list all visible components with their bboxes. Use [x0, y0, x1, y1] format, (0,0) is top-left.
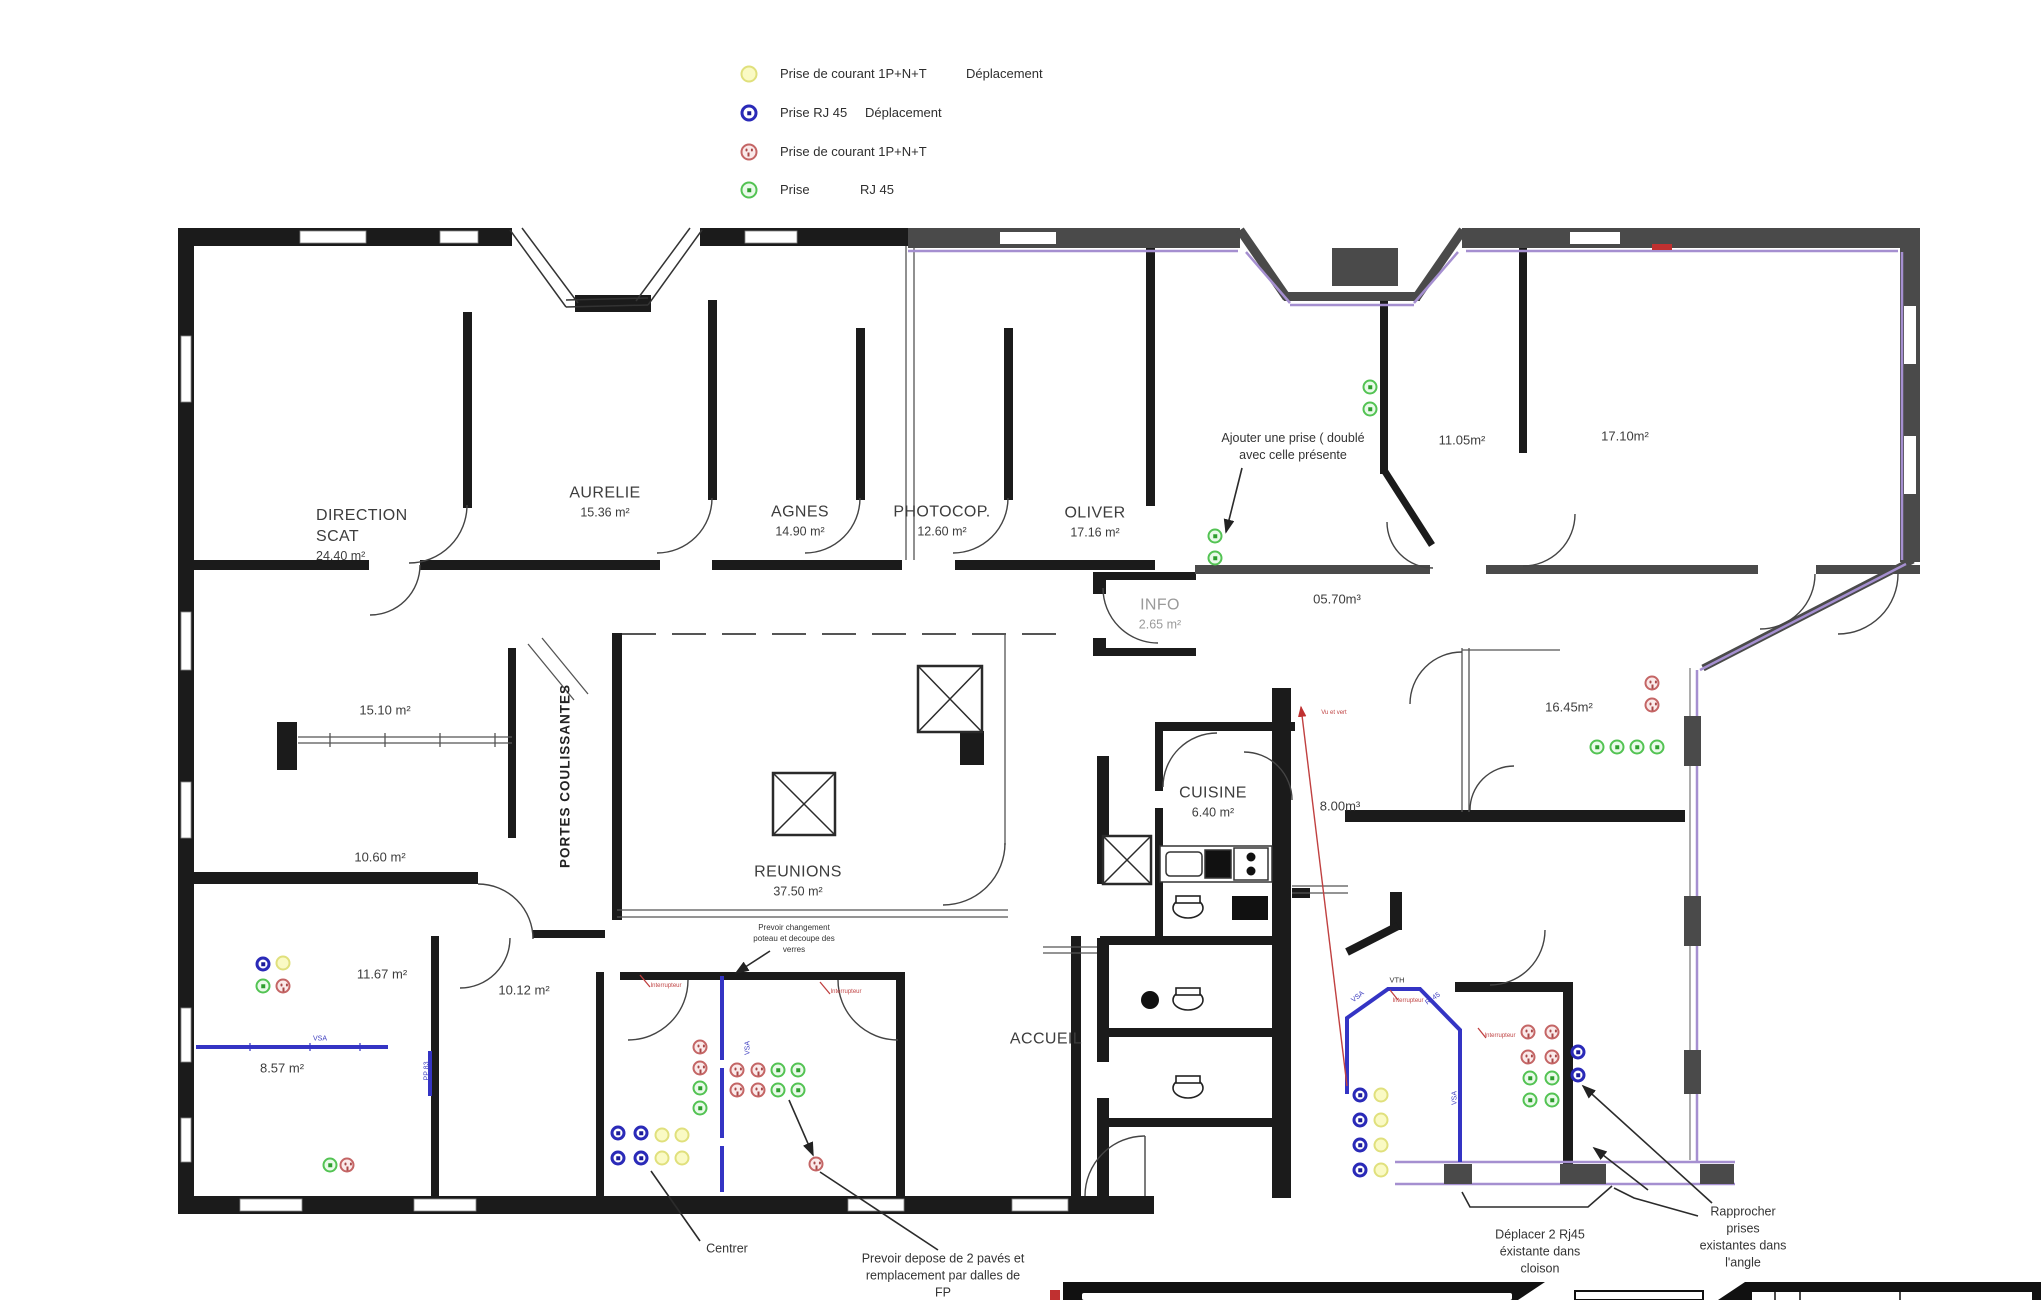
gray-wall-gaps [1000, 232, 1916, 574]
floor-plan-drawing [0, 0, 2041, 1300]
prise-courant-icon [1521, 1025, 1536, 1040]
prise-courant-icon [730, 1083, 745, 1098]
wall-label: PP 83 [424, 1062, 431, 1081]
wall-label: VSA [745, 1041, 752, 1055]
prise-courant-icon [1545, 1025, 1560, 1040]
wc-basin [1141, 991, 1159, 1009]
room-label: 10.60 m² [354, 850, 405, 867]
legend-label: Prise de courant 1P+N+T [780, 144, 927, 159]
annotation-prevoir-depose: Prevoir depose de 2 pavés etremplacement… [862, 1251, 1025, 1300]
prise-rj45-icon [1610, 740, 1625, 755]
prise-rj45-icon [1363, 402, 1378, 417]
wc-fixtures [1173, 896, 1203, 1098]
prise-courant-icon [809, 1157, 824, 1172]
prise-rj45-icon [1208, 529, 1223, 544]
legend-prise-rj45-icon [741, 182, 758, 199]
prise-courant-icon [751, 1083, 766, 1098]
room-label: 11.05m² [1439, 433, 1486, 450]
bottom-fragments [1050, 1282, 2041, 1300]
room-label: AGNES14.90 m² [771, 502, 829, 539]
wall-label: VSA [313, 1036, 327, 1043]
prise-rj45-icon [1523, 1071, 1538, 1086]
prise-courant-deplacement-icon [675, 1151, 690, 1166]
room-label: CUISINE6.40 m² [1179, 783, 1247, 820]
blue-vsa-walls [196, 976, 1460, 1192]
wall-label: VSA [1452, 1091, 1459, 1105]
prise-courant-deplacement-icon [1374, 1113, 1389, 1128]
prise-rj45-icon [256, 979, 271, 994]
pillars [773, 666, 1151, 884]
prise-rj45-icon [791, 1083, 806, 1098]
annotation-deplacer-rj45: Déplacer 2 Rj45éxistante danscloison [1495, 1227, 1585, 1278]
prise-rj45-deplacement-icon [611, 1126, 626, 1141]
wall-label: Vu et vert [1321, 710, 1346, 716]
annotation-prevoir-changement: Prevoir changementpoteau et decoupe desv… [753, 923, 834, 955]
room-label: 16.45m² [1545, 700, 1593, 717]
prise-rj45-deplacement-icon [256, 957, 271, 972]
prise-courant-icon [1545, 1050, 1560, 1065]
room-label: 10.12 m² [498, 983, 549, 1000]
legend-label: Prise [780, 182, 810, 197]
thin-partitions [298, 246, 1560, 953]
red-wall-mark [1652, 244, 1672, 250]
wall-label: VTH [1390, 976, 1405, 985]
room-label: AURELIE15.36 m² [569, 483, 640, 520]
stove-burner [1247, 867, 1256, 876]
prise-courant-deplacement-icon [675, 1128, 690, 1143]
prise-rj45-deplacement-icon [611, 1151, 626, 1166]
prise-rj45-icon [1650, 740, 1665, 755]
room-label: 11.67 m² [357, 967, 407, 984]
room-label: 15.10 m² [359, 703, 410, 720]
wall-diagonal [1347, 926, 1398, 952]
legend-prise-courant-icon [741, 144, 758, 161]
legend-label-extra: Déplacement [966, 66, 1043, 81]
prise-courant-icon [730, 1063, 745, 1078]
legend-label: Prise RJ 45 [780, 105, 847, 120]
prise-rj45-icon [1523, 1093, 1538, 1108]
annotation-rapprocher-prises: Rapprocherprisesexistantes dansl'angle [1700, 1203, 1787, 1271]
room-label: INFO2.65 m² [1139, 595, 1181, 632]
prise-rj45-deplacement-icon [1571, 1068, 1586, 1083]
room-label: ACCUEIL [1010, 1030, 1082, 1051]
prise-rj45-icon [693, 1101, 708, 1116]
annotation-ajouter-prise: Ajouter une prise ( doubléavec celle pré… [1221, 430, 1364, 464]
prise-courant-icon [1645, 698, 1660, 713]
prise-rj45-icon [1363, 380, 1378, 395]
blue-wall-gap [719, 1138, 725, 1146]
stove-burner [1247, 853, 1256, 862]
wall-label: Interrupteur [830, 989, 861, 995]
legend-label: Prise de courant 1P+N+T [780, 66, 927, 81]
floor-plan-page: Prise de courant 1P+N+T Déplacement Pris… [0, 0, 2041, 1300]
room-label: DIRECTIONSCAT24.40 m² [316, 506, 408, 564]
wall-label: Interrupteur [1392, 998, 1423, 1004]
room-label: PHOTOCOP.12.60 m² [893, 502, 990, 539]
prise-rj45-deplacement-icon [1353, 1138, 1368, 1153]
prise-rj45-icon [1208, 551, 1223, 566]
prise-rj45-icon [1630, 740, 1645, 755]
kitchen-counter [1160, 846, 1272, 882]
prise-rj45-icon [791, 1063, 806, 1078]
prise-rj45-deplacement-icon [1353, 1088, 1368, 1103]
prise-courant-icon [1645, 676, 1660, 691]
prise-rj45-deplacement-icon [1353, 1163, 1368, 1178]
prise-rj45-icon [1590, 740, 1605, 755]
switch-ticks [640, 975, 1486, 1038]
prise-courant-deplacement-icon [655, 1151, 670, 1166]
prise-rj45-deplacement-icon [634, 1126, 649, 1141]
prise-courant-deplacement-icon [276, 956, 291, 971]
prise-courant-deplacement-icon [1374, 1088, 1389, 1103]
room-label: OLIVER17.16 m² [1064, 503, 1125, 540]
prise-rj45-deplacement-icon [634, 1151, 649, 1166]
legend-label-extra: Déplacement [865, 105, 942, 120]
prise-rj45-icon [323, 1158, 338, 1173]
room-label: 8.57 m² [260, 1061, 304, 1078]
room-label: 8.00m³ [1320, 799, 1360, 816]
prise-rj45-icon [693, 1081, 708, 1096]
wall-label: Interrupteur [1484, 1033, 1515, 1039]
prise-courant-icon [751, 1063, 766, 1078]
prise-courant-deplacement-icon [655, 1128, 670, 1143]
prise-rj45-icon [771, 1063, 786, 1078]
legend-label-extra: RJ 45 [860, 182, 894, 197]
legend-prise-rj45-deplacement-icon [741, 105, 758, 122]
prise-courant-icon [340, 1158, 355, 1173]
prise-courant-deplacement-icon [1374, 1138, 1389, 1153]
wall-label: Interrupteur [650, 983, 681, 989]
prise-courant-icon [693, 1040, 708, 1055]
prise-courant-icon [276, 979, 291, 994]
prise-rj45-icon [771, 1083, 786, 1098]
prise-courant-icon [693, 1061, 708, 1076]
prise-rj45-deplacement-icon [1571, 1045, 1586, 1060]
room-label: 05.70m³ [1313, 592, 1361, 609]
prise-rj45-icon [1545, 1093, 1560, 1108]
wall-diagonal [1384, 470, 1432, 545]
prise-courant-icon [1521, 1050, 1536, 1065]
wc-block [1232, 896, 1268, 920]
prise-rj45-icon [1545, 1071, 1560, 1086]
blue-wall-gap [719, 1060, 725, 1068]
prise-courant-deplacement-icon [1374, 1163, 1389, 1178]
legend-prise-courant-deplacement-icon [741, 66, 758, 83]
room-label: 17.10m² [1601, 429, 1649, 446]
room-label: REUNIONS37.50 m² [754, 862, 842, 899]
wall-label: PORTES COULISSANTES [558, 684, 573, 868]
prise-rj45-deplacement-icon [1353, 1113, 1368, 1128]
annotation-centrer: Centrer [706, 1241, 748, 1258]
